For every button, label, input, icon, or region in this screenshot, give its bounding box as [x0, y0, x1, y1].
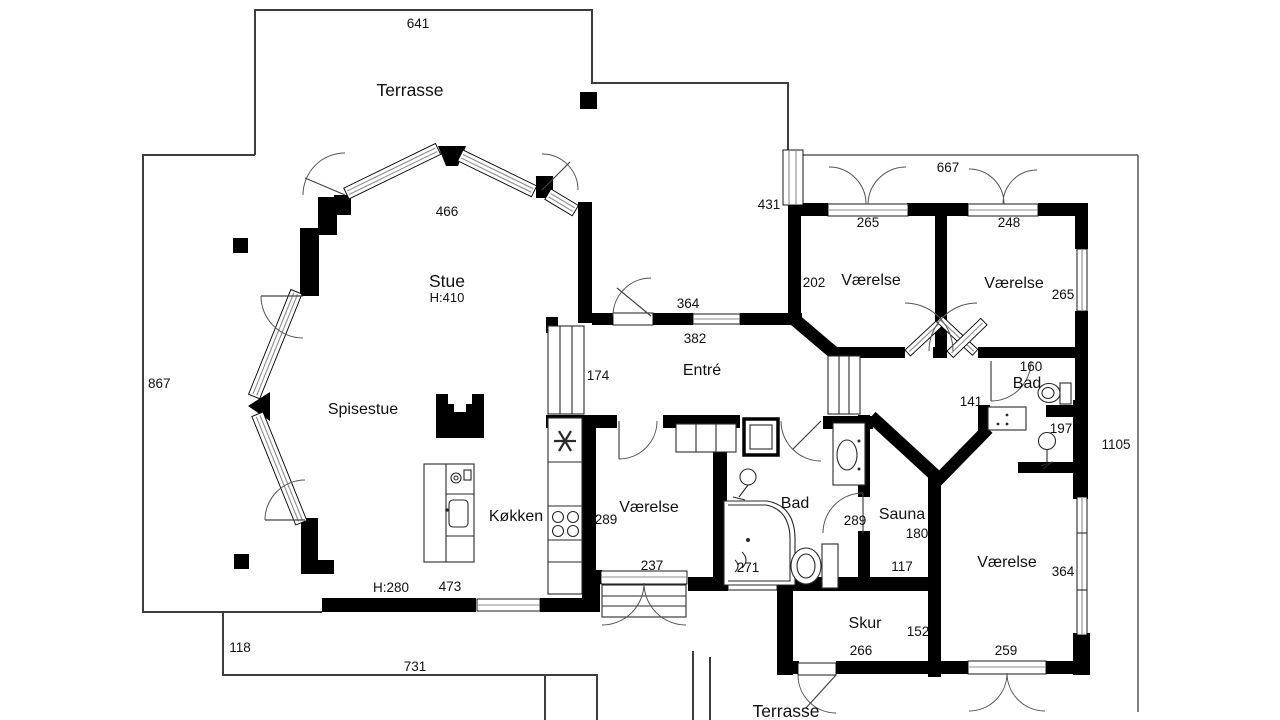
room-label-entre: Entré — [683, 362, 721, 379]
site-outlines — [143, 10, 1138, 720]
sink-bad-mid — [833, 423, 865, 485]
room-label-terrasse-bottom: Terrasse — [752, 701, 819, 720]
window-kitchen-south — [477, 599, 540, 611]
room-label-spisestue: Spisestue — [328, 401, 398, 418]
dim-237: 237 — [641, 558, 664, 573]
room-label-skur: Skur — [849, 615, 883, 632]
shower-head-icon-bad-mid — [733, 469, 756, 500]
bay-door-ne — [545, 189, 579, 216]
sink-bad-ne — [988, 407, 1026, 430]
room-label-terrasse-top: Terrasse — [376, 80, 443, 100]
door-vaerelse-mid — [619, 421, 657, 459]
dim-174: 174 — [587, 368, 610, 383]
bay-window-nw — [344, 144, 441, 199]
note-kitchen-height: H:280 — [373, 580, 409, 595]
room-label-vaerelse-nw: Værelse — [841, 272, 901, 289]
hall-wardrobe — [828, 356, 860, 414]
room-label-vaerelse-mid: Værelse — [619, 499, 679, 516]
room-label-bad-mid: Bad — [781, 495, 809, 512]
tech-cabinet — [744, 419, 778, 455]
kitchen-counter — [548, 418, 582, 594]
dim-867: 867 — [148, 376, 171, 391]
dim-266: 266 — [850, 643, 873, 658]
dim-271: 271 — [737, 560, 760, 575]
door-bedroom-ne-terrace — [968, 169, 1038, 216]
dim-1105: 1105 — [1101, 437, 1130, 452]
dim-117: 117 — [891, 559, 913, 574]
toilet-bad-ne — [1038, 383, 1071, 404]
dim-141: 141 — [960, 394, 983, 409]
dim-118: 118 — [229, 640, 251, 655]
bay-window-w-lower — [252, 412, 307, 525]
room-label-vaerelse-se: Værelse — [977, 554, 1037, 571]
note-stue-height: H:410 — [430, 290, 465, 305]
floor-plan-page: Terrasse 641 466 Stue H:410 867 Spisestu… — [0, 0, 1280, 720]
bay-window-w-upper — [249, 290, 302, 399]
dim-641: 641 — [407, 16, 430, 31]
room-label-sauna: Sauna — [879, 506, 925, 523]
shower-enclosure — [724, 501, 795, 585]
floor-plan-svg: Terrasse 641 466 Stue H:410 867 Spisestu… — [0, 0, 1280, 720]
room-label-kokken: Køkken — [489, 508, 543, 525]
dim-289-vm: 289 — [595, 512, 618, 527]
dim-265-nw: 265 — [857, 215, 880, 230]
dim-473: 473 — [439, 579, 462, 594]
door-vaerelse-mid-terrace — [601, 571, 687, 625]
window-bedroom-se-east — [1077, 497, 1087, 635]
dim-731: 731 — [404, 659, 427, 674]
bay-window-ne — [458, 150, 537, 197]
dim-382: 382 — [684, 331, 707, 346]
room-label-vaerelse-ne: Værelse — [984, 275, 1044, 292]
dim-152: 152 — [907, 624, 930, 639]
door-bay-nw — [303, 153, 345, 195]
door-bedroom-nw-terrace — [828, 167, 908, 216]
door-bad-mid — [781, 421, 821, 461]
kitchen-island — [424, 464, 474, 562]
fixtures — [424, 326, 1071, 594]
room-label-stue: Stue — [429, 271, 465, 291]
fireplace-icon — [436, 394, 484, 438]
door-bay-ne — [542, 154, 578, 190]
dim-248: 248 — [998, 215, 1021, 230]
entre-wardrobe — [548, 326, 584, 414]
terrace-post — [580, 92, 597, 109]
dim-160: 160 — [1020, 359, 1043, 374]
dim-265-ne: 265 — [1052, 287, 1075, 302]
dim-202: 202 — [803, 275, 826, 290]
door-front — [613, 278, 653, 325]
window-bedroom-ne-east — [1077, 249, 1087, 311]
dim-364-se: 364 — [1052, 564, 1075, 579]
window-entre-north — [693, 314, 740, 324]
door-vaerelse-se-terrace — [968, 661, 1046, 711]
dim-466: 466 — [436, 204, 459, 219]
toilet-bad-mid — [791, 544, 838, 588]
dim-431: 431 — [758, 197, 781, 212]
room-label-bad-ne: Bad — [1013, 375, 1041, 392]
dim-259: 259 — [995, 643, 1018, 658]
terrace-glass-screen — [783, 150, 803, 205]
dim-197: 197 — [1050, 421, 1073, 436]
dim-667: 667 — [937, 160, 960, 175]
terrace-post — [234, 554, 249, 569]
dim-289-bad: 289 — [844, 513, 867, 528]
labels: Terrasse 641 466 Stue H:410 867 Spisestu… — [148, 16, 1131, 720]
dim-364-entre: 364 — [677, 296, 700, 311]
terrace-post — [233, 238, 248, 253]
bedroom-wardrobe — [676, 424, 736, 452]
dim-180: 180 — [906, 526, 929, 541]
bay-windows — [249, 144, 988, 525]
